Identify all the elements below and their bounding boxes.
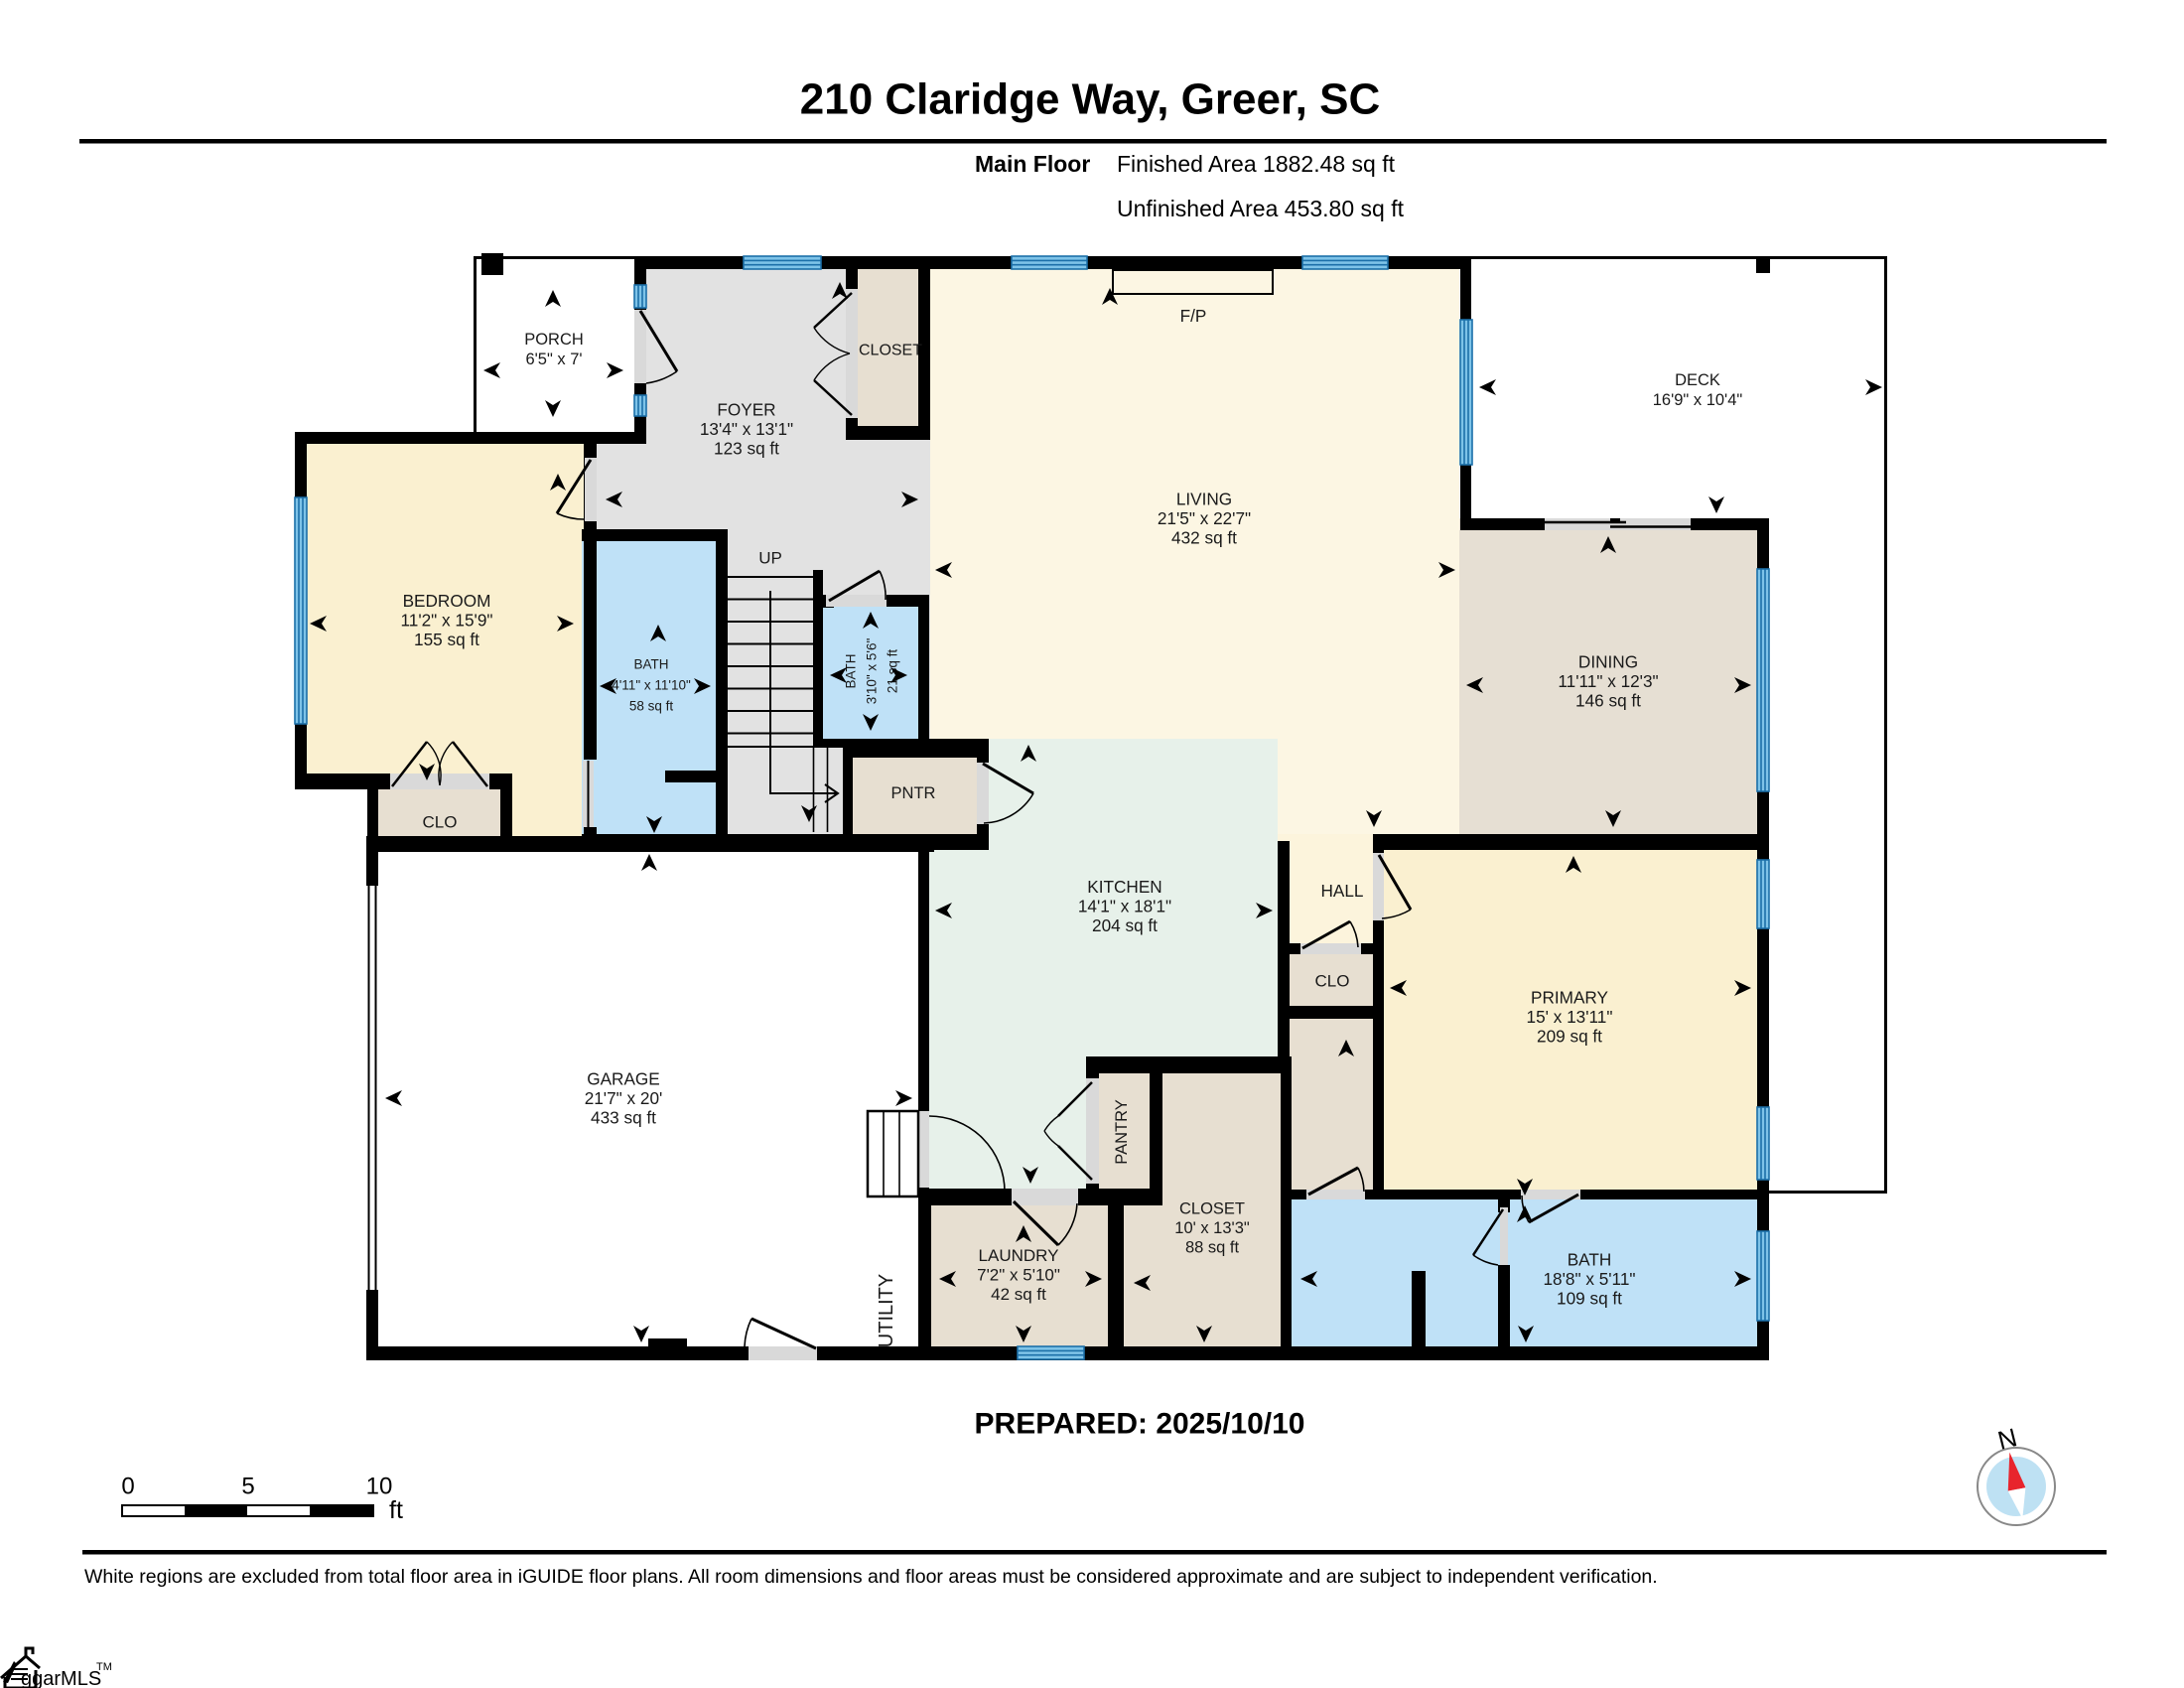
svg-text:4'11" x 11'10": 4'11" x 11'10" (612, 678, 691, 693)
svg-text:CLOSET: CLOSET (859, 343, 922, 359)
svg-text:BATH: BATH (844, 653, 859, 688)
svg-text:BATH: BATH (633, 657, 668, 672)
svg-text:209 sq ft: 209 sq ft (1537, 1027, 1602, 1047)
svg-text:LAUNDRY: LAUNDRY (979, 1246, 1059, 1265)
svg-text:204 sq ft: 204 sq ft (1092, 915, 1158, 935)
svg-text:14'1" x 18'1": 14'1" x 18'1" (1078, 897, 1171, 916)
svg-text:16'9" x 10'4": 16'9" x 10'4" (1653, 391, 1743, 409)
svg-text:21'5" x 22'7": 21'5" x 22'7" (1158, 508, 1251, 528)
svg-text:58 sq ft: 58 sq ft (629, 699, 674, 714)
svg-text:PRIMARY: PRIMARY (1531, 988, 1609, 1008)
svg-text:432 sq ft: 432 sq ft (1171, 528, 1237, 548)
svg-text:TM: TM (96, 1661, 112, 1673)
svg-text:PORCH: PORCH (524, 331, 584, 349)
svg-text:GARAGE: GARAGE (587, 1069, 660, 1089)
svg-text:13'4" x 13'1": 13'4" x 13'1" (700, 419, 793, 439)
svg-text:18'8" x 5'11": 18'8" x 5'11" (1544, 1269, 1636, 1289)
svg-text:KITCHEN: KITCHEN (1087, 877, 1161, 897)
svg-text:FOYER: FOYER (717, 400, 775, 420)
svg-text:433 sq ft: 433 sq ft (591, 1108, 656, 1128)
svg-text:6'5" x 7': 6'5" x 7' (525, 351, 582, 368)
svg-text:15' x 13'11": 15' x 13'11" (1527, 1007, 1613, 1027)
svg-text:5: 5 (241, 1474, 254, 1500)
svg-text:10' x 13'3": 10' x 13'3" (1174, 1219, 1250, 1237)
svg-text:123 sq ft: 123 sq ft (714, 439, 779, 459)
svg-text:CLOSET: CLOSET (1179, 1200, 1245, 1218)
svg-text:UP: UP (758, 549, 782, 568)
svg-text:0: 0 (121, 1474, 134, 1500)
svg-text:DECK: DECK (1675, 371, 1720, 389)
svg-text:ggarMLS: ggarMLS (21, 1668, 101, 1688)
svg-text:7'2" x 5'10": 7'2" x 5'10" (977, 1266, 1060, 1285)
svg-text:LIVING: LIVING (1176, 490, 1232, 509)
svg-text:109 sq ft: 109 sq ft (1557, 1289, 1622, 1309)
svg-text:11'11" x 12'3": 11'11" x 12'3" (1558, 671, 1658, 691)
svg-text:PANTRY: PANTRY (1113, 1099, 1131, 1164)
svg-text:Main Floor: Main Floor (975, 151, 1090, 177)
svg-text:CLO: CLO (1315, 972, 1350, 991)
svg-text:Unfinished Area 453.80 sq ft: Unfinished Area 453.80 sq ft (1117, 196, 1405, 221)
svg-text:21'7" x 20': 21'7" x 20' (585, 1088, 663, 1108)
svg-text:146 sq ft: 146 sq ft (1575, 691, 1641, 711)
svg-text:DINING: DINING (1578, 652, 1638, 672)
svg-text:PREPARED: 2025/10/10: PREPARED: 2025/10/10 (975, 1408, 1305, 1441)
svg-text:155 sq ft: 155 sq ft (414, 630, 479, 649)
svg-text:Finished Area 1882.48 sq ft: Finished Area 1882.48 sq ft (1117, 151, 1396, 177)
svg-text:11'2" x 15'9": 11'2" x 15'9" (401, 611, 493, 631)
svg-text:White regions are excluded fro: White regions are excluded from total fl… (84, 1566, 1658, 1588)
svg-text:BATH: BATH (1568, 1250, 1612, 1270)
svg-text:3'10" x 5'6": 3'10" x 5'6" (865, 638, 880, 705)
svg-text:42 sq ft: 42 sq ft (991, 1285, 1046, 1304)
svg-text:UTILITY: UTILITY (876, 1274, 897, 1347)
svg-text:88 sq ft: 88 sq ft (1185, 1239, 1240, 1257)
svg-text:ft: ft (389, 1496, 403, 1524)
svg-text:CLO: CLO (423, 813, 458, 832)
svg-text:PNTR: PNTR (891, 784, 936, 802)
svg-text:HALL: HALL (1321, 881, 1364, 901)
svg-text:210 Claridge Way, Greer, SC: 210 Claridge Way, Greer, SC (800, 75, 1380, 124)
svg-text:F/P: F/P (1180, 306, 1207, 326)
svg-text:BEDROOM: BEDROOM (403, 591, 491, 611)
